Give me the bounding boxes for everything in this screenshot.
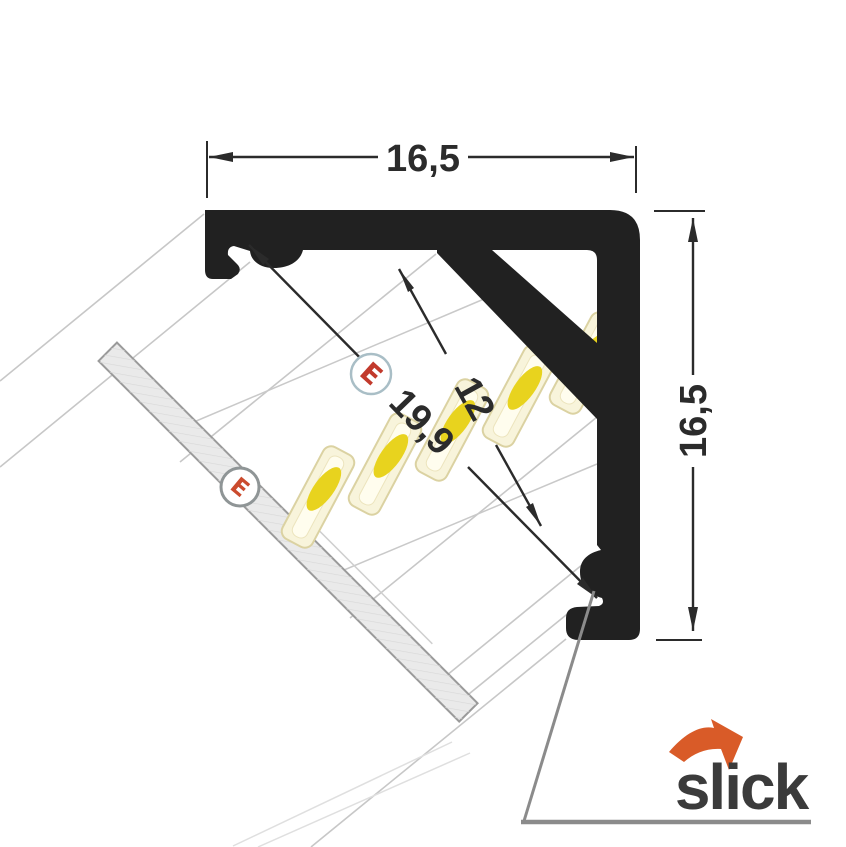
dimension-label-top: 16,5 [386, 138, 460, 180]
perspective-line [0, 214, 204, 381]
leader-line [524, 591, 594, 821]
strip-marker: E [351, 354, 391, 394]
arrowhead [399, 269, 414, 292]
dimension-line [468, 467, 597, 598]
dimension-label-right: 16,5 [673, 384, 715, 458]
dimension-top-width: 16,5 [207, 138, 636, 198]
perspective-line-faint [258, 753, 470, 847]
brand-logo: slick [669, 719, 810, 823]
arrowhead [526, 503, 541, 526]
profile-cross-section-drawing: E 16,5 16,5 19,9 12 [0, 0, 846, 847]
technical-drawing-page: E 16,5 16,5 19,9 12 [0, 0, 846, 847]
dimension-right-height: 16,5 [654, 211, 715, 640]
arrowhead [209, 152, 233, 162]
cover-marker: E [221, 468, 259, 506]
led-module [279, 443, 358, 551]
arrowhead [688, 218, 698, 242]
perspective-line-faint [233, 742, 452, 846]
arrowhead [688, 607, 698, 631]
arrowhead [610, 152, 634, 162]
brand-name: slick [675, 751, 810, 823]
dimension-line [249, 245, 373, 371]
